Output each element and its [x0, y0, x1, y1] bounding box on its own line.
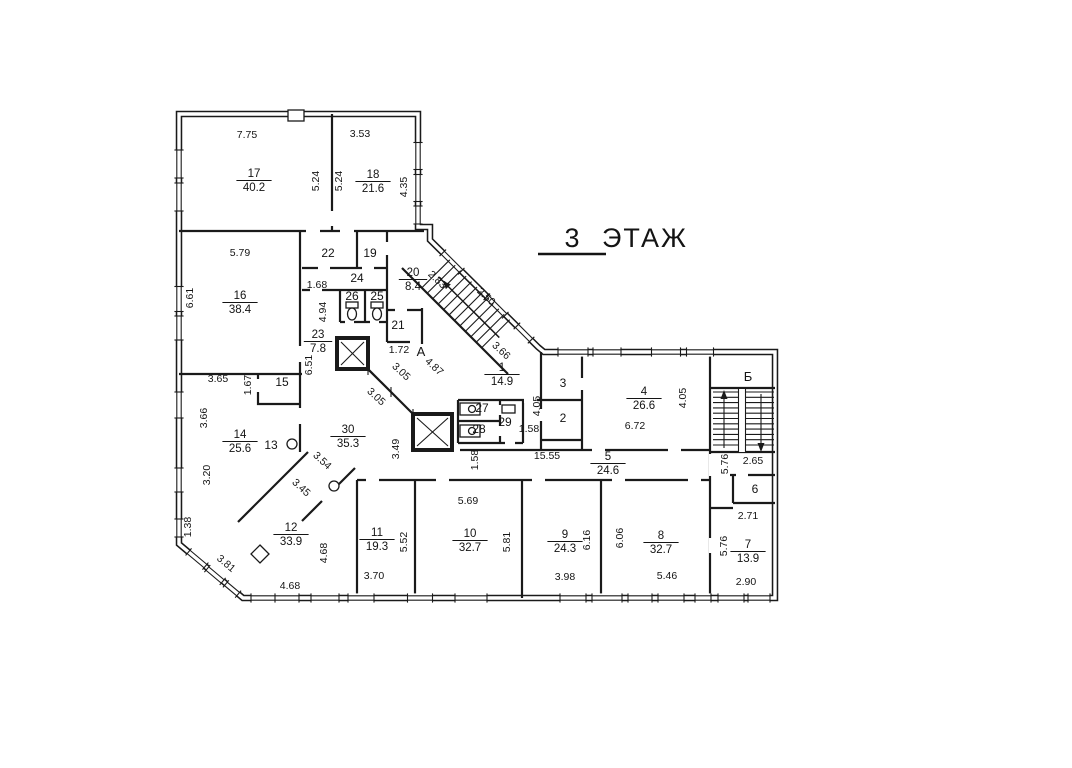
- window: [748, 593, 770, 602]
- room-area: 14.9: [491, 376, 513, 388]
- space-15-label: 15: [275, 375, 289, 389]
- room-area: 38.4: [229, 304, 252, 316]
- window: [174, 468, 183, 492]
- door-opening: [505, 440, 515, 446]
- window: [251, 593, 299, 602]
- dimension-label: 5.69: [458, 495, 479, 507]
- window: [592, 593, 622, 602]
- dimension-label: 3.65: [208, 373, 229, 385]
- room-number: 10: [464, 528, 477, 540]
- dimension-label: 5.24: [333, 171, 345, 192]
- dimension-label: 1.58: [469, 450, 481, 471]
- dimension-label: 1.67: [242, 375, 254, 396]
- space-21-label: 21: [391, 318, 405, 332]
- exterior-wall-outline: [179, 114, 775, 598]
- room-area: 32.7: [650, 544, 672, 556]
- round-column: [329, 481, 339, 491]
- door-opening: [340, 227, 354, 234]
- door-opening: [436, 477, 449, 483]
- elevator-shaft: [413, 414, 452, 450]
- dimension-label: 4.68: [318, 543, 330, 564]
- room-area: 13.9: [737, 553, 759, 565]
- room-number: 18: [367, 169, 380, 181]
- window: [174, 287, 183, 312]
- room-number: 16: [234, 290, 247, 302]
- dimension-label: 4.05: [531, 396, 543, 417]
- dimension-label: 4.68: [280, 580, 301, 592]
- door-opening: [395, 307, 407, 313]
- dimension-label: 4.05: [677, 388, 689, 409]
- dimension-label: 4.35: [398, 177, 410, 198]
- space-6-label: 6: [752, 482, 759, 496]
- room-area: 24.3: [554, 543, 576, 555]
- stairwell-А-label: А: [417, 344, 426, 359]
- room-area: 25.6: [229, 443, 251, 455]
- dimension-label: 2.65: [743, 455, 764, 467]
- dimension-label: 3.20: [201, 465, 213, 486]
- space-28-label: 28: [472, 422, 486, 436]
- room-number: 5: [605, 451, 611, 463]
- window: [652, 347, 681, 356]
- dimension-label: 1.38: [182, 517, 194, 538]
- space-29-label: 29: [498, 415, 512, 429]
- round-column: [287, 439, 297, 449]
- room-number: 9: [562, 529, 568, 541]
- room-area: 24.6: [597, 465, 619, 477]
- dimension-label: 6.61: [184, 288, 196, 309]
- room-number: 4: [641, 386, 648, 398]
- window: [413, 175, 422, 202]
- dimension-label: 2.90: [736, 576, 757, 588]
- exterior-walls: [179, 110, 775, 598]
- door-opening: [362, 265, 374, 271]
- floor-title-number: 3: [564, 223, 579, 253]
- dimension-label: 7.75: [237, 129, 258, 141]
- dimension-label: 4.94: [317, 302, 329, 323]
- space-24-label: 24: [350, 271, 364, 285]
- door-opening: [366, 477, 379, 483]
- window: [455, 593, 487, 602]
- space-3-label: 3: [560, 376, 567, 390]
- space-22-label: 22: [321, 246, 335, 260]
- stairwell-Б-label: Б: [744, 369, 753, 384]
- floor-title: 3 ЭТАЖ: [538, 223, 688, 254]
- window: [413, 143, 422, 170]
- door-opening: [709, 454, 716, 476]
- dimension-label: 5.79: [230, 247, 251, 259]
- door-opening: [592, 447, 605, 453]
- floor-plan-svg: 1740.21821.61638.4208.4237.8114.9426.614…: [0, 0, 1072, 768]
- sink-icon: [502, 405, 515, 413]
- window: [718, 593, 744, 602]
- wall-pilaster: [288, 110, 304, 121]
- dimension-label: 5.24: [310, 171, 322, 192]
- room-area: 35.3: [337, 438, 359, 450]
- room-area: 33.9: [280, 536, 302, 548]
- window: [687, 347, 714, 356]
- floor-title-word: ЭТАЖ: [602, 223, 688, 253]
- dimension-label: 5.76: [719, 454, 731, 475]
- door-opening: [297, 408, 303, 424]
- room-number: 17: [248, 168, 261, 180]
- space-26-label: 26: [345, 289, 359, 303]
- room-number: 30: [342, 424, 355, 436]
- door-opening: [612, 477, 625, 483]
- door-opening: [329, 211, 335, 226]
- door-opening: [668, 447, 681, 453]
- door-opening: [255, 379, 261, 392]
- dimension-label: 2.71: [738, 510, 759, 522]
- room-number: 20: [407, 267, 420, 279]
- dimension-label: 6.16: [581, 530, 593, 551]
- dimension-label: 3.49: [390, 439, 402, 460]
- room-area: 26.6: [633, 400, 655, 412]
- door-opening: [384, 242, 390, 255]
- window: [695, 593, 711, 602]
- dimension-label: 5.81: [501, 532, 513, 553]
- dimension-label: 6.51: [303, 355, 315, 376]
- room-area: 7.8: [310, 343, 326, 355]
- door-opening: [688, 477, 701, 483]
- dimension-label: 15.55: [534, 450, 560, 462]
- room-number: 14: [234, 429, 247, 441]
- room-number: 12: [285, 522, 298, 534]
- dimension-label: 3.53: [350, 128, 371, 140]
- room-number: 11: [371, 527, 383, 539]
- room-area: 32.7: [459, 542, 481, 554]
- floor-plan-page: 1740.21821.61638.4208.4237.8114.9426.614…: [0, 0, 1072, 768]
- room-number: 23: [312, 329, 325, 341]
- toilet-icon: [371, 302, 383, 320]
- door-opening: [709, 538, 716, 553]
- window: [593, 347, 621, 356]
- window: [413, 206, 422, 224]
- dimension-label: 1.72: [389, 344, 410, 356]
- dimension-label: 1.68: [307, 279, 328, 291]
- room-area: 21.6: [362, 183, 384, 195]
- window: [174, 183, 183, 211]
- window: [658, 593, 684, 602]
- door-opening: [579, 378, 585, 390]
- window: [174, 150, 183, 178]
- window: [408, 593, 433, 602]
- room-area: 19.3: [366, 541, 388, 553]
- dimension-label: 1.58: [519, 423, 540, 435]
- window: [174, 392, 183, 418]
- dimension-label: 6.06: [614, 528, 626, 549]
- dimension-label: 3.66: [198, 408, 210, 429]
- room-number: 8: [658, 530, 664, 542]
- door-opening: [736, 472, 748, 478]
- door-opening: [532, 477, 545, 483]
- space-25-label: 25: [370, 289, 384, 303]
- space-27-label: 27: [475, 401, 489, 415]
- window: [311, 593, 339, 602]
- window: [628, 593, 652, 602]
- dimension-label: 5.76: [718, 536, 730, 557]
- space-2-label: 2: [560, 411, 567, 425]
- room-area: 8.4: [405, 281, 422, 293]
- dimension-label: 5.52: [398, 532, 410, 553]
- room-area: 40.2: [243, 182, 265, 194]
- window: [348, 593, 374, 602]
- room-number: 7: [745, 539, 751, 551]
- dimension-label: 3.98: [555, 571, 576, 583]
- window: [560, 593, 586, 602]
- toilet-icon: [346, 302, 358, 320]
- dimension-label: 3.70: [364, 570, 385, 582]
- window: [174, 316, 183, 340]
- space-13-label: 13: [264, 438, 278, 452]
- dimension-label: 5.46: [657, 570, 678, 582]
- room-number: 1: [499, 362, 505, 374]
- door-opening: [318, 265, 330, 271]
- window: [558, 347, 588, 356]
- space-19-label: 19: [363, 246, 377, 260]
- door-opening: [306, 227, 320, 234]
- dimension-label: 6.72: [625, 420, 646, 432]
- elevator-shaft: [337, 338, 368, 369]
